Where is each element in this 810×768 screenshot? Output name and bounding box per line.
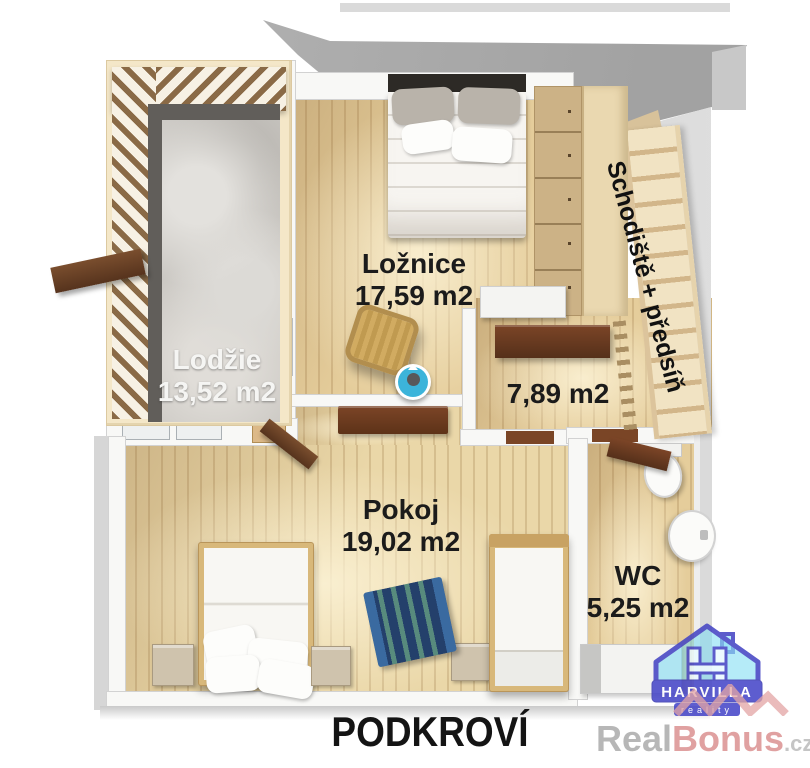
door-threshold	[506, 431, 554, 444]
nightstand	[311, 646, 351, 686]
viewpoint-360-icon	[395, 364, 431, 400]
single-bed-headboard	[489, 534, 569, 547]
person-icon	[407, 373, 420, 386]
portal-watermark: RealBonus.cz	[596, 718, 808, 760]
desk	[495, 325, 610, 358]
watermark-part: .cz	[784, 731, 810, 756]
roofline-icon	[672, 684, 792, 716]
pillow	[457, 87, 520, 125]
sink	[668, 510, 716, 562]
room-area: 7,89 m2	[478, 378, 638, 410]
pillow	[451, 126, 513, 164]
room-name: WC	[560, 560, 716, 592]
loggia-window	[176, 424, 222, 440]
wc-label: WC 5,25 m2	[560, 560, 716, 624]
room-area: 19,02 m2	[316, 526, 486, 558]
room-area: 17,59 m2	[328, 280, 500, 312]
roof-ridge	[340, 3, 730, 12]
wardrobe	[534, 86, 582, 316]
loznice-hall-wall	[462, 308, 476, 434]
room-name: Pokoj	[316, 494, 486, 526]
arrow-up-icon	[408, 364, 418, 370]
single-bed-mattress	[495, 548, 563, 650]
sink-tap	[700, 530, 708, 540]
pillow	[205, 654, 261, 694]
room-name: Lodžie	[128, 344, 306, 376]
watermark-part: Bonus	[672, 718, 784, 759]
watermark-part: Real	[596, 718, 672, 759]
nightstand	[152, 644, 194, 686]
pokoj-label: Pokoj 19,02 m2	[316, 494, 486, 558]
room-name: Ložnice	[328, 248, 500, 280]
wardrobe-handles	[568, 92, 571, 310]
room-area: 13,52 m2	[128, 376, 306, 408]
sideboard	[338, 406, 448, 434]
floor-title: PODKROVÍ	[254, 708, 606, 756]
loggia-window	[122, 424, 170, 440]
floorplan-canvas: Lodžie 13,52 m2 Ložnice 17,59 m2 7,89 m2…	[0, 0, 810, 768]
nightstand	[451, 643, 491, 681]
loznice-label: Ložnice 17,59 m2	[328, 248, 500, 312]
room-area: 5,25 m2	[560, 592, 716, 624]
pokoj-left-wall	[108, 436, 126, 708]
hall-room-label: 7,89 m2	[478, 378, 638, 410]
single-bed-blanket	[495, 650, 563, 686]
rug	[363, 577, 457, 668]
lodzie-label: Lodžie 13,52 m2	[128, 344, 306, 408]
